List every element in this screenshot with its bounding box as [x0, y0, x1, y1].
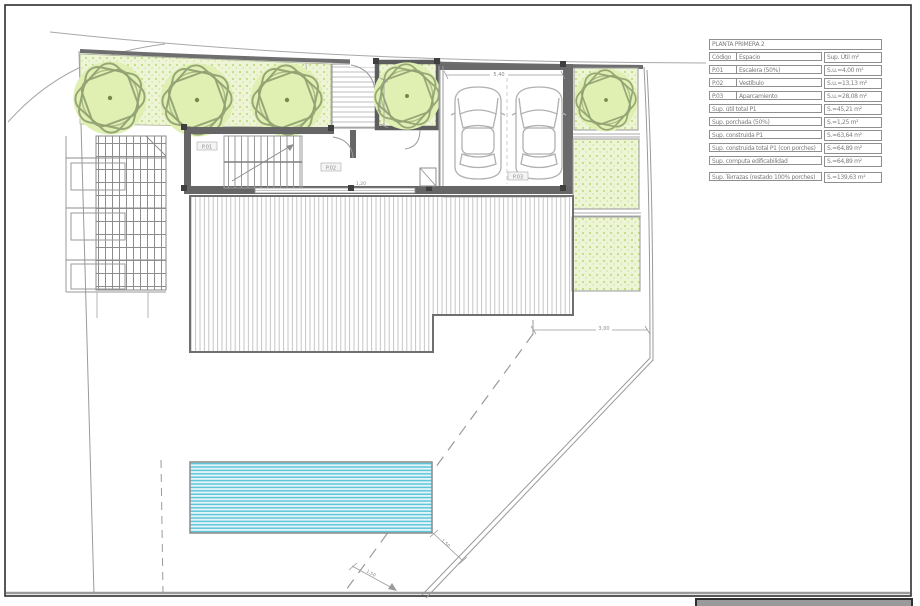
row-space: Escalera (50%) [737, 66, 821, 74]
table-row: P.03 Aparcamiento S.u.=28,08 m² [709, 91, 882, 102]
summary-label: Sup. porchada (50%) [710, 118, 821, 126]
summary-label: Sup. construida total P1 (con porches) [710, 144, 821, 152]
summary-value: S.=64,89 m² [824, 156, 882, 167]
summary-label: Sup. computa edificabilidad [710, 157, 821, 165]
table-row: P.02 Vestíbulo S.u.=13,13 m² [709, 78, 882, 89]
room-label-p01: P.01 [202, 144, 212, 150]
summary-row: Sup. porchada (50%) S.=1,25 m² [709, 117, 882, 128]
dim-courtyard-depth: 2,40 [377, 102, 383, 112]
summary-value: S.=45,21 m² [824, 104, 882, 115]
room-label-p03: P.03 [513, 174, 523, 180]
courtyard [371, 60, 444, 133]
terrace-label: Sup. Terrazas (restado 100% porches) [710, 173, 821, 181]
summary-row: Sup. útil total P1 S.=45,21 m² [709, 104, 882, 115]
col-header-code: Código [710, 53, 737, 61]
row-space: Aparcamiento [737, 92, 821, 100]
row-code: P.01 [710, 66, 737, 74]
table-title-row: PLANTA PRIMERA 2 [709, 39, 882, 50]
summary-row: Sup. construida P1 S.=63,64 m² [709, 130, 882, 141]
dim-boundary-offset: 3,00 [598, 326, 609, 332]
summary-value: S.=1,25 m² [824, 117, 882, 128]
row-code: P.02 [710, 79, 737, 87]
garage [439, 64, 573, 197]
floor-plan-sheet: 5,40 2,40 1,20 3,00 1,50 1,50 P.01 P.02 … [0, 0, 920, 606]
row-value: S.u.=13,13 m² [824, 78, 882, 89]
summary-label: Sup. útil total P1 [710, 105, 821, 113]
row-value: S.u.=28,08 m² [824, 91, 882, 102]
swimming-pool [190, 462, 432, 533]
summary-value: S.=64,89 m² [824, 143, 882, 154]
col-header-area: Sup. Útil m² [824, 52, 882, 63]
terrace-value: S.=139,63 m² [824, 172, 882, 183]
row-value: S.u.=4,00 m² [824, 65, 882, 76]
interior [224, 130, 436, 188]
dim-porch-width: 1,20 [356, 181, 366, 187]
entry-porch [332, 59, 377, 128]
table-row: P.01 Escalera (50%) S.u.=4,00 m² [709, 65, 882, 76]
row-code: P.03 [710, 92, 737, 100]
terrace-deck [190, 196, 573, 352]
dashed-lines [161, 320, 533, 594]
areas-table: PLANTA PRIMERA 2 Código Espacio Sup. Úti… [709, 39, 882, 185]
door-arc-courtyard [405, 130, 420, 149]
summary-row: Sup. construida total P1 (con porches) S… [709, 143, 882, 154]
right-garden-terraces [572, 66, 641, 291]
terrace-row: Sup. Terrazas (restado 100% porches) S.=… [709, 172, 882, 183]
room-label-p02: P.02 [326, 165, 336, 171]
col-header-space: Espacio [737, 53, 821, 61]
exterior-steps [66, 136, 166, 318]
dim-drive-width: 1,50 [365, 569, 377, 579]
table-title: PLANTA PRIMERA 2 [709, 39, 882, 50]
partial-sheet-box [696, 599, 912, 606]
table-header-row: Código Espacio Sup. Útil m² [709, 52, 882, 63]
summary-value: S.=63,64 m² [824, 130, 882, 141]
dim-garage-width: 5,40 [493, 72, 504, 78]
garden-band [70, 54, 331, 140]
summary-row: Sup. computa edificabilidad S.=64,89 m² [709, 156, 882, 167]
summary-label: Sup. construida P1 [710, 131, 821, 139]
row-space: Vestíbulo [737, 79, 821, 87]
dim-pool-offset: 1,50 [440, 538, 452, 549]
setback-dashed-line [161, 460, 163, 594]
